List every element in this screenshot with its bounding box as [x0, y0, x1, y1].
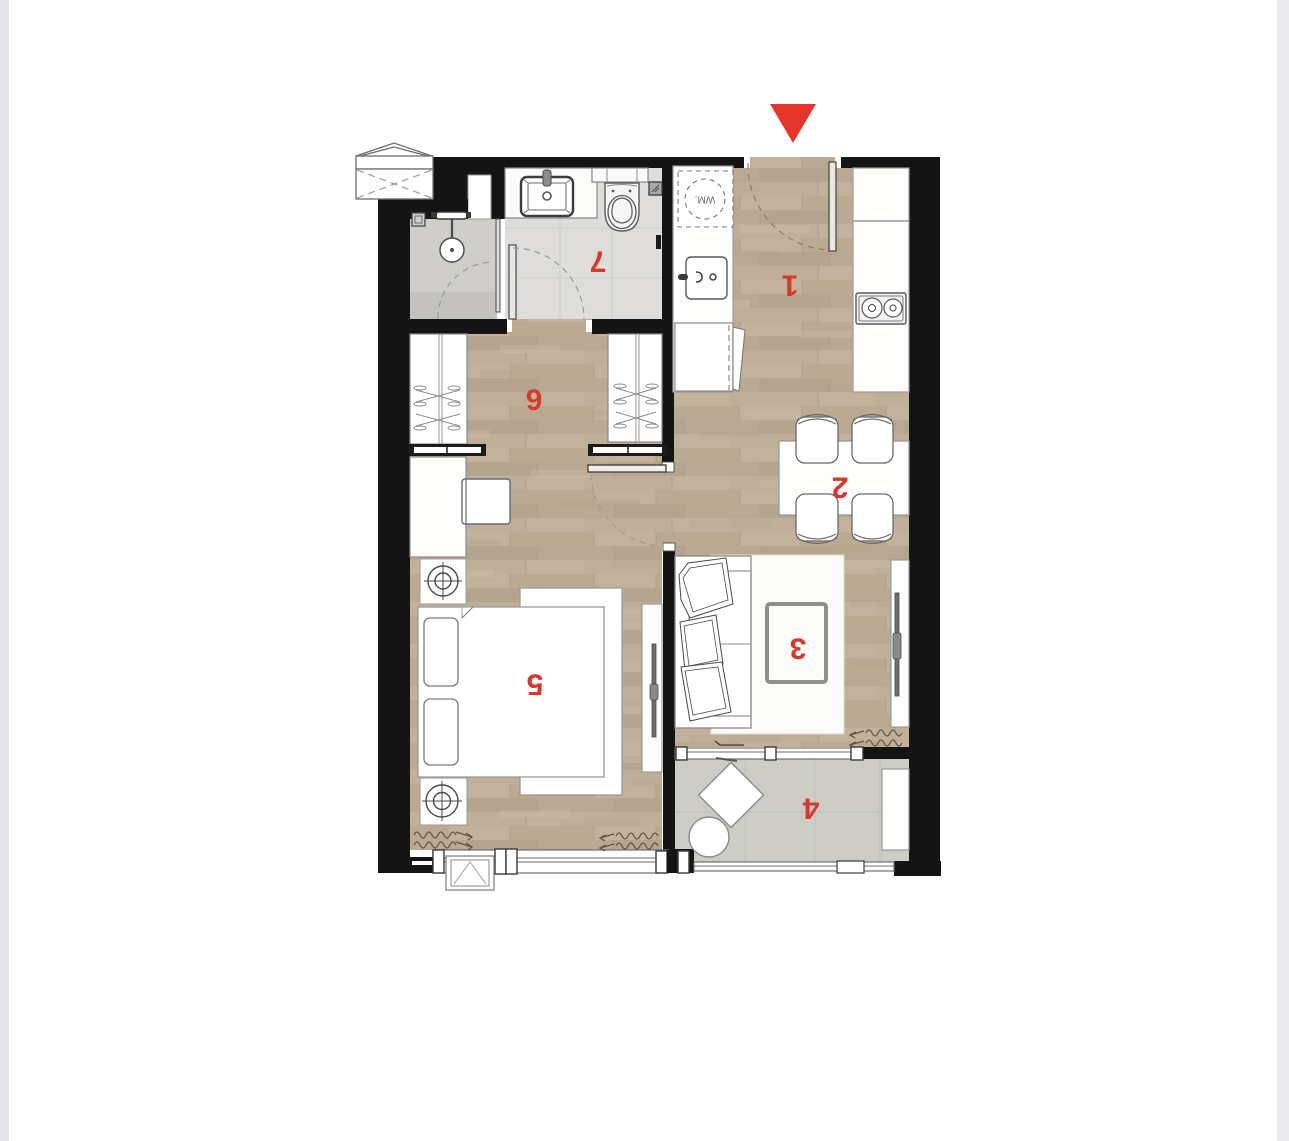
svg-text:WM.: WM.: [695, 194, 716, 205]
svg-text:5: 5: [527, 668, 544, 701]
svg-text:2: 2: [832, 471, 849, 504]
svg-text:6: 6: [526, 383, 543, 416]
svg-text:7: 7: [590, 245, 607, 278]
svg-text:4: 4: [802, 792, 819, 825]
svg-text:1: 1: [782, 269, 799, 302]
svg-text:3: 3: [790, 632, 807, 665]
